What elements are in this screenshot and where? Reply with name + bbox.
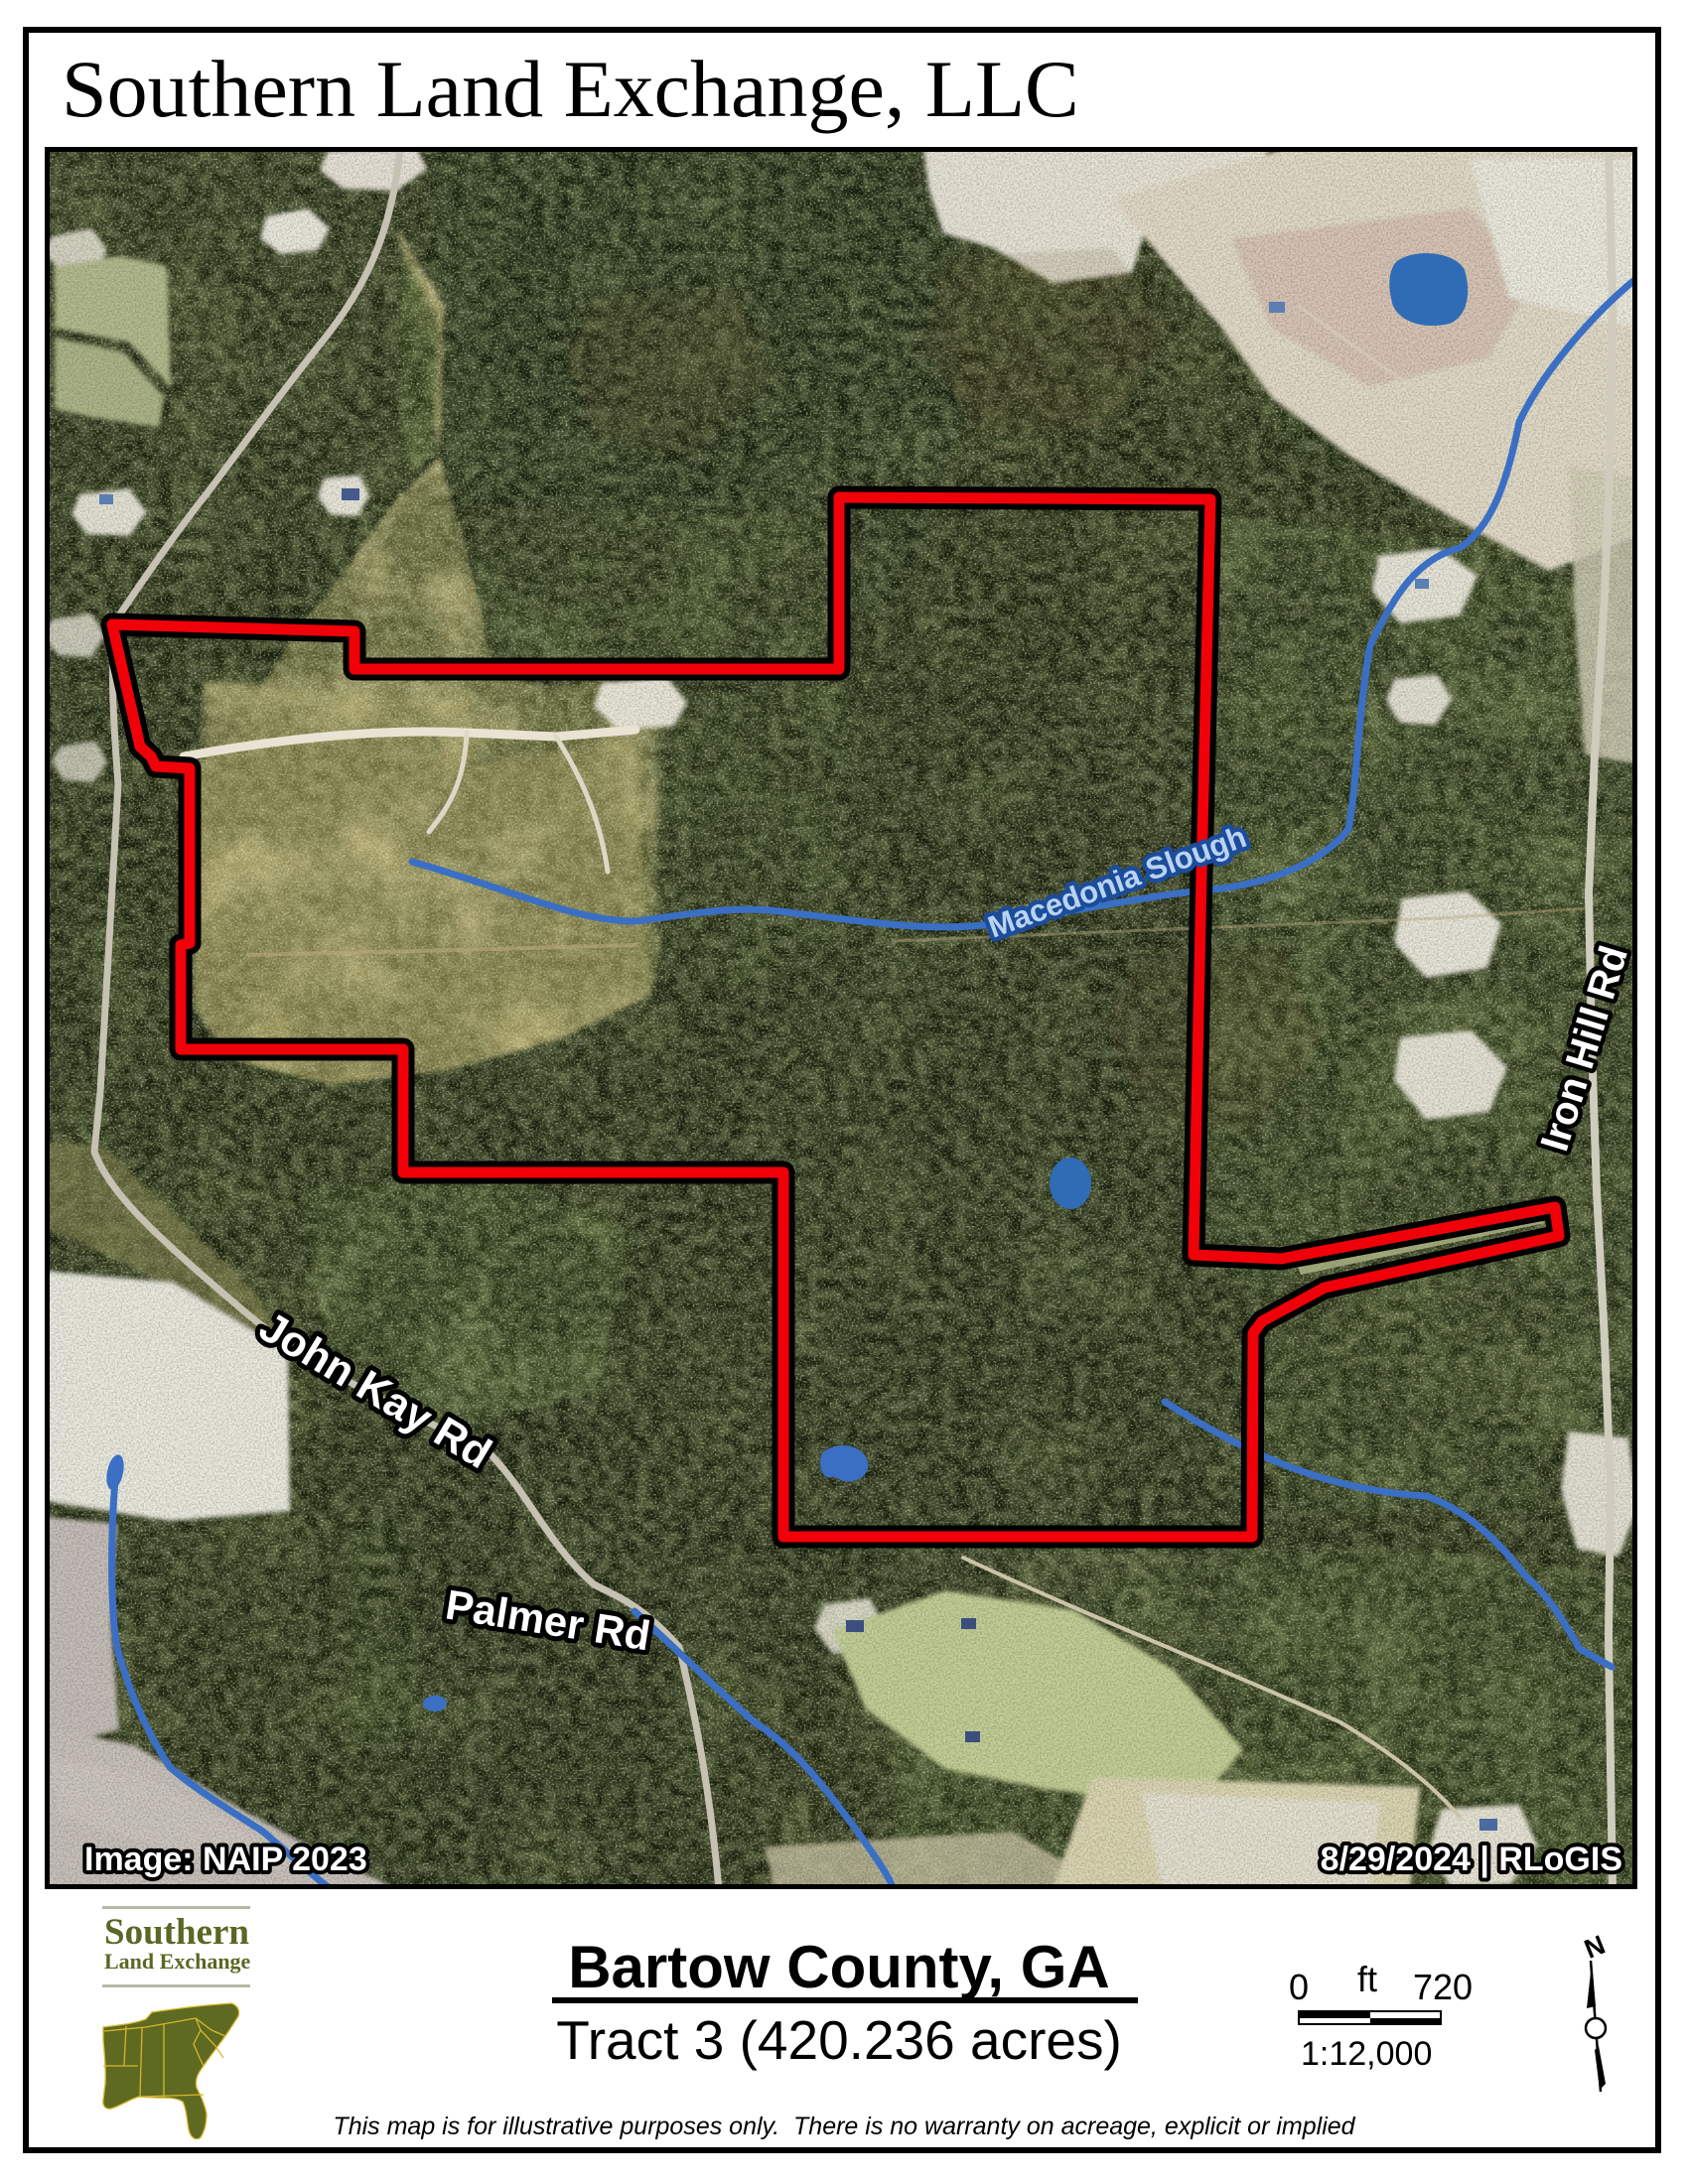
svg-text:8/29/2024 | RLoGIS: 8/29/2024 | RLoGIS — [1321, 1841, 1622, 1878]
svg-text:Image: NAIP 2023: Image: NAIP 2023 — [84, 1841, 367, 1878]
svg-text:N: N — [1580, 1930, 1609, 1965]
